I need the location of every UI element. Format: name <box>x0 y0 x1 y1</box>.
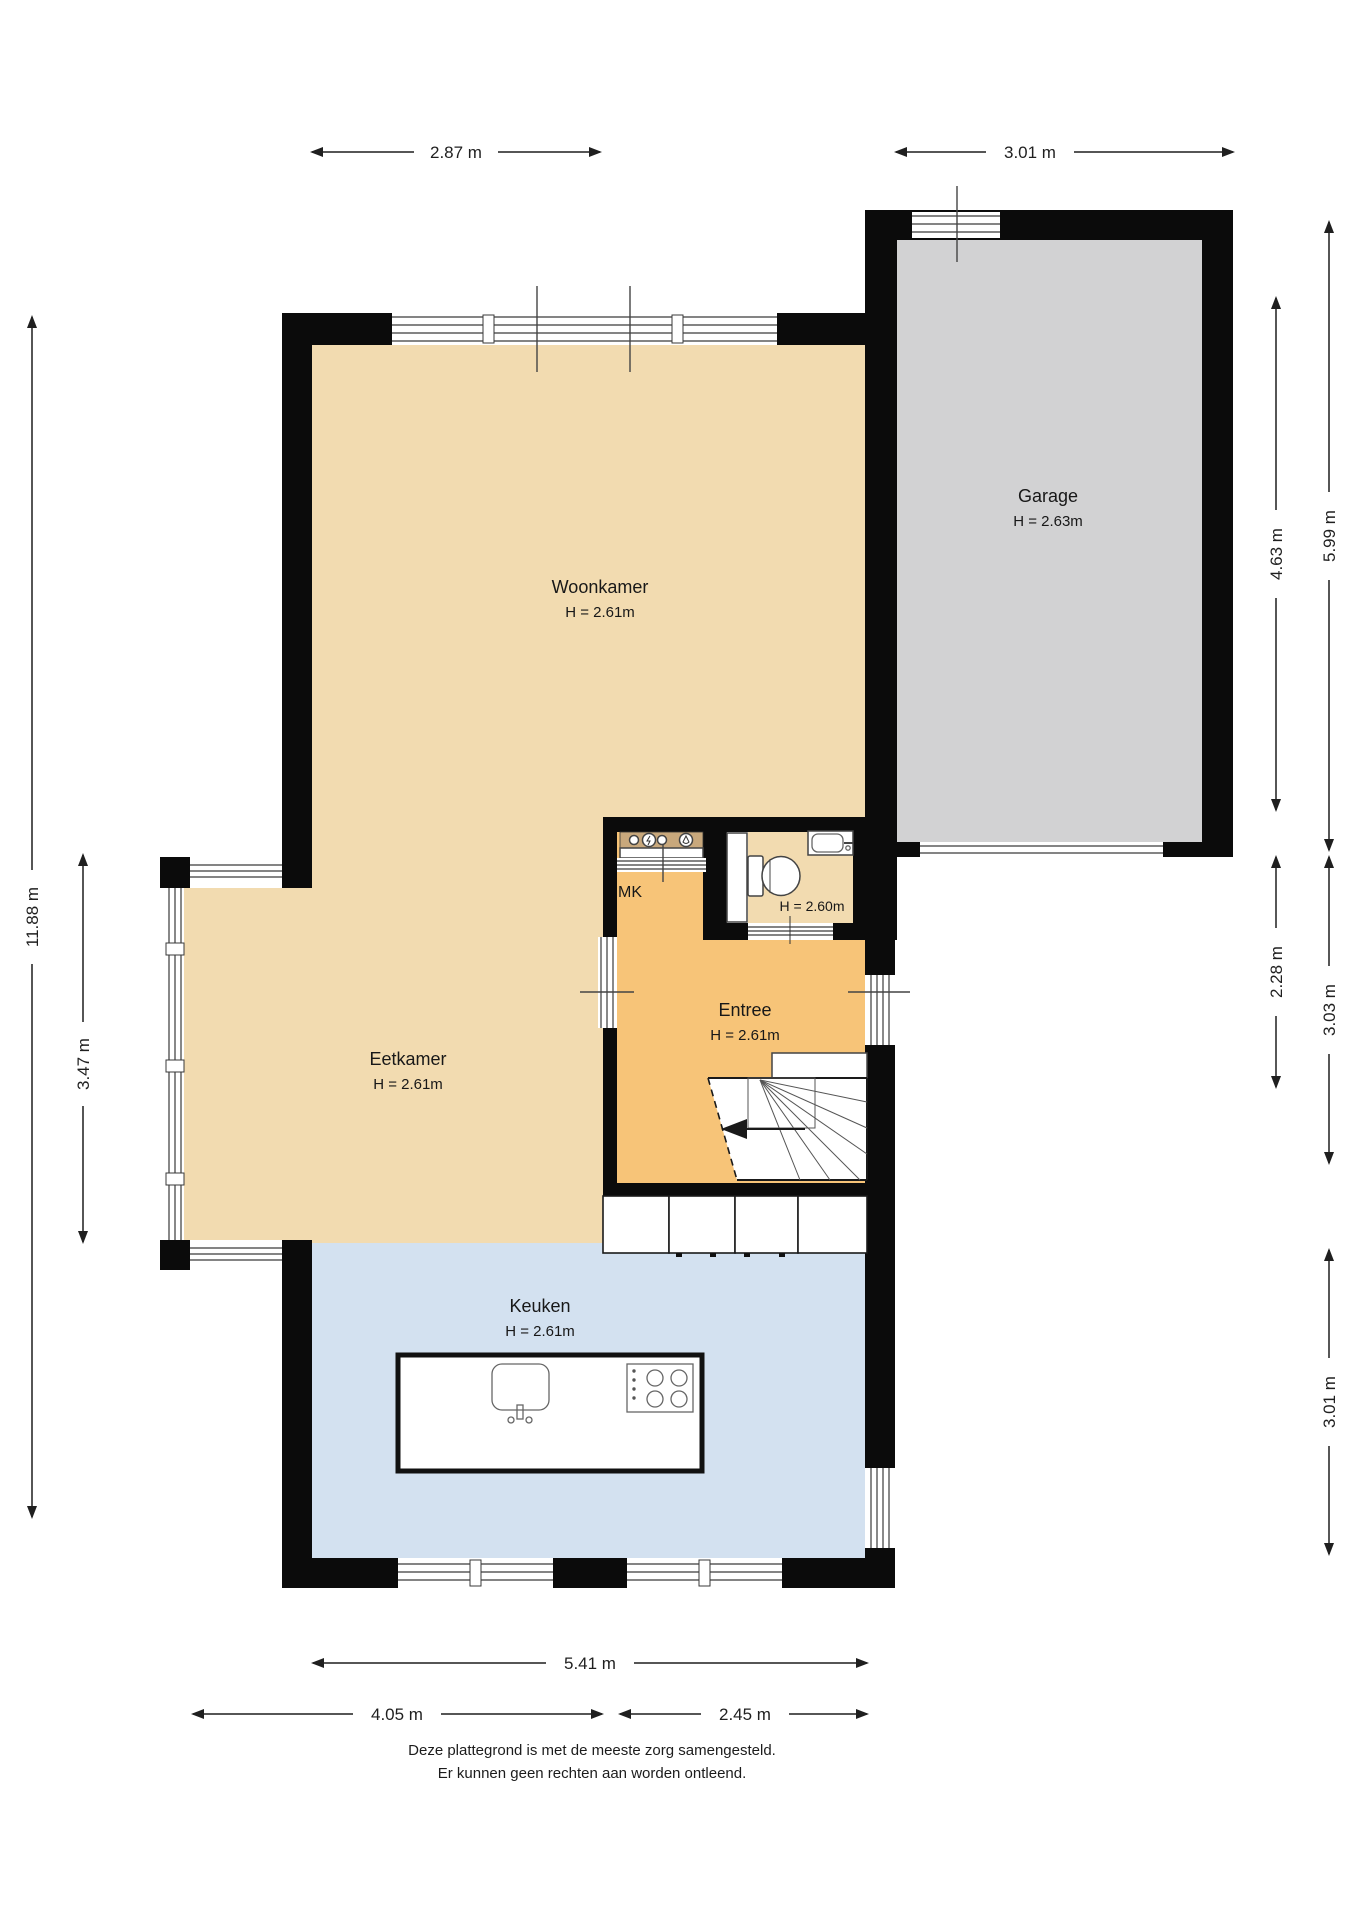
floorplan-canvas: Woonkamer H = 2.61m Garage H = 2.63m Eet… <box>0 0 1358 1920</box>
svg-text:3.03 m: 3.03 m <box>1320 984 1339 1036</box>
wall <box>865 240 897 832</box>
wall <box>853 817 897 940</box>
wall <box>603 817 897 832</box>
wall <box>282 1240 312 1588</box>
wall <box>1163 842 1202 857</box>
dimension-bottom-1: 5.41 m <box>313 1654 867 1673</box>
dimension-left-1: 11.88 m <box>23 317 42 1517</box>
wall <box>703 923 748 940</box>
wall <box>703 817 727 940</box>
wall <box>282 1558 398 1588</box>
dimension-right-2: 4.63 m <box>1267 298 1286 810</box>
dimension-left-2: 3.47 m <box>74 855 93 1242</box>
svg-text:4.63 m: 4.63 m <box>1267 528 1286 580</box>
wall-corner-post <box>160 857 190 888</box>
room-height-woonkamer: H = 2.61m <box>565 604 635 621</box>
room-height-toilet: H = 2.60m <box>780 898 845 914</box>
svg-text:2.87 m: 2.87 m <box>430 143 482 162</box>
garage-door <box>920 846 1163 853</box>
wall <box>282 313 312 888</box>
dimension-right-4: 3.03 m <box>1320 857 1339 1163</box>
room-height-garage: H = 2.63m <box>1013 513 1083 530</box>
toilet-icon <box>748 856 800 896</box>
svg-text:2.45 m: 2.45 m <box>719 1705 771 1724</box>
svg-text:3.47 m: 3.47 m <box>74 1038 93 1090</box>
room-eetkamer-bay-floor <box>182 888 312 1240</box>
wall <box>833 923 897 940</box>
room-height-eetkamer: H = 2.61m <box>373 1076 443 1093</box>
svg-text:2.28 m: 2.28 m <box>1267 946 1286 998</box>
window-keuken-right <box>867 1468 893 1548</box>
kitchen-island <box>398 1355 702 1471</box>
window-bay-top <box>190 861 282 881</box>
svg-text:3.01 m: 3.01 m <box>1320 1376 1339 1428</box>
disclaimer-line-2: Er kunnen geen rechten aan worden ontlee… <box>438 1765 747 1782</box>
wall <box>865 1045 895 1196</box>
hand-basin-icon <box>808 831 853 855</box>
room-label-keuken: Keuken <box>509 1296 570 1316</box>
wall <box>603 1183 895 1196</box>
room-label-garage: Garage <box>1018 486 1078 506</box>
svg-text:3.01 m: 3.01 m <box>1004 143 1056 162</box>
room-height-keuken: H = 2.61m <box>505 1323 575 1340</box>
window-keuken-bottom-right <box>627 1560 782 1586</box>
dimension-top-2: 3.01 m <box>896 143 1233 162</box>
wall <box>603 832 617 937</box>
room-height-entree: H = 2.61m <box>710 1027 780 1044</box>
wall <box>897 842 920 857</box>
footer-disclaimer: Deze plattegrond is met de meeste zorg s… <box>408 1742 776 1782</box>
wall <box>865 1196 895 1468</box>
svg-text:4.05 m: 4.05 m <box>371 1705 423 1724</box>
wall <box>865 940 895 975</box>
dimension-right-1: 5.99 m <box>1320 222 1339 850</box>
floorplan-page: Woonkamer H = 2.61m Garage H = 2.63m Eet… <box>0 0 1358 1920</box>
window-keuken-bottom-left <box>398 1560 553 1586</box>
wall <box>777 313 880 345</box>
wall-corner-post <box>160 1240 190 1270</box>
wall <box>553 1558 627 1588</box>
window-eetkamer-left <box>166 888 184 1240</box>
wall <box>782 1558 895 1588</box>
door-toilet <box>727 833 747 922</box>
room-label-woonkamer: Woonkamer <box>552 577 649 597</box>
room-label-eetkamer: Eetkamer <box>369 1049 446 1069</box>
dimension-bottom-2: 4.05 m <box>193 1705 602 1724</box>
wall <box>603 1028 617 1196</box>
svg-text:11.88 m: 11.88 m <box>23 887 42 947</box>
room-label-mk: MK <box>618 884 642 901</box>
dimension-top-1: 2.87 m <box>312 143 600 162</box>
wall <box>1202 240 1233 857</box>
svg-text:5.99 m: 5.99 m <box>1320 510 1339 562</box>
svg-text:5.41 m: 5.41 m <box>564 1654 616 1673</box>
room-label-entree: Entree <box>718 1000 771 1020</box>
dimension-right-3: 2.28 m <box>1267 857 1286 1087</box>
dimension-right-5: 3.01 m <box>1320 1250 1339 1554</box>
disclaimer-line-1: Deze plattegrond is met de meeste zorg s… <box>408 1742 776 1759</box>
dimension-bottom-3: 2.45 m <box>620 1705 867 1724</box>
kitchen-cabinets <box>603 1196 867 1257</box>
room-garage-floor <box>897 240 1202 842</box>
window-bay-bottom <box>190 1244 282 1264</box>
